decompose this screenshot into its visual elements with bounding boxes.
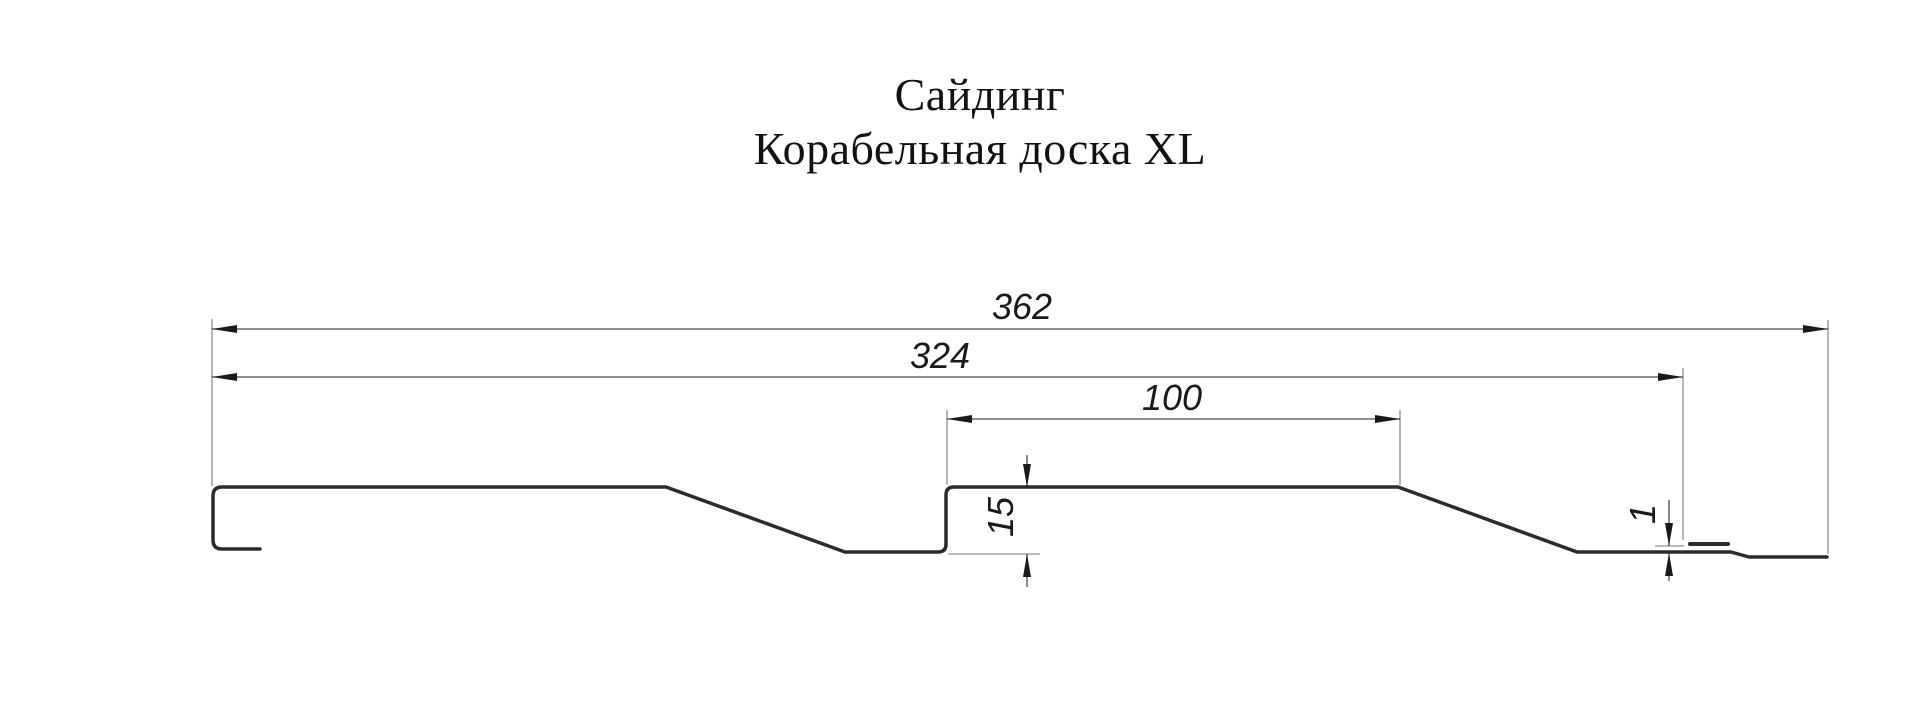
arrow-right-100-icon xyxy=(1375,415,1400,423)
dim-label-1: 1 xyxy=(1622,504,1664,524)
arrow-up-1-icon xyxy=(1665,553,1673,576)
arrow-up-15-icon xyxy=(1023,554,1031,577)
arrow-left-100-icon xyxy=(947,415,972,423)
arrow-left-324-icon xyxy=(212,373,237,381)
arrow-down-1-icon xyxy=(1665,523,1673,546)
arrow-right-324-icon xyxy=(1658,373,1683,381)
dim-label-15: 15 xyxy=(980,497,1022,537)
arrow-down-15-icon xyxy=(1023,464,1031,487)
dim-label-324: 324 xyxy=(910,335,970,377)
arrow-right-362-icon xyxy=(1803,325,1828,333)
arrow-left-362-icon xyxy=(212,325,237,333)
drawing-canvas: Сайдинг Корабельная доска XL xyxy=(0,0,1920,723)
dim-label-362: 362 xyxy=(992,286,1052,328)
dim-label-100: 100 xyxy=(1142,377,1202,419)
dimension-15 xyxy=(1023,455,1031,587)
dimension-1 xyxy=(1665,500,1673,581)
